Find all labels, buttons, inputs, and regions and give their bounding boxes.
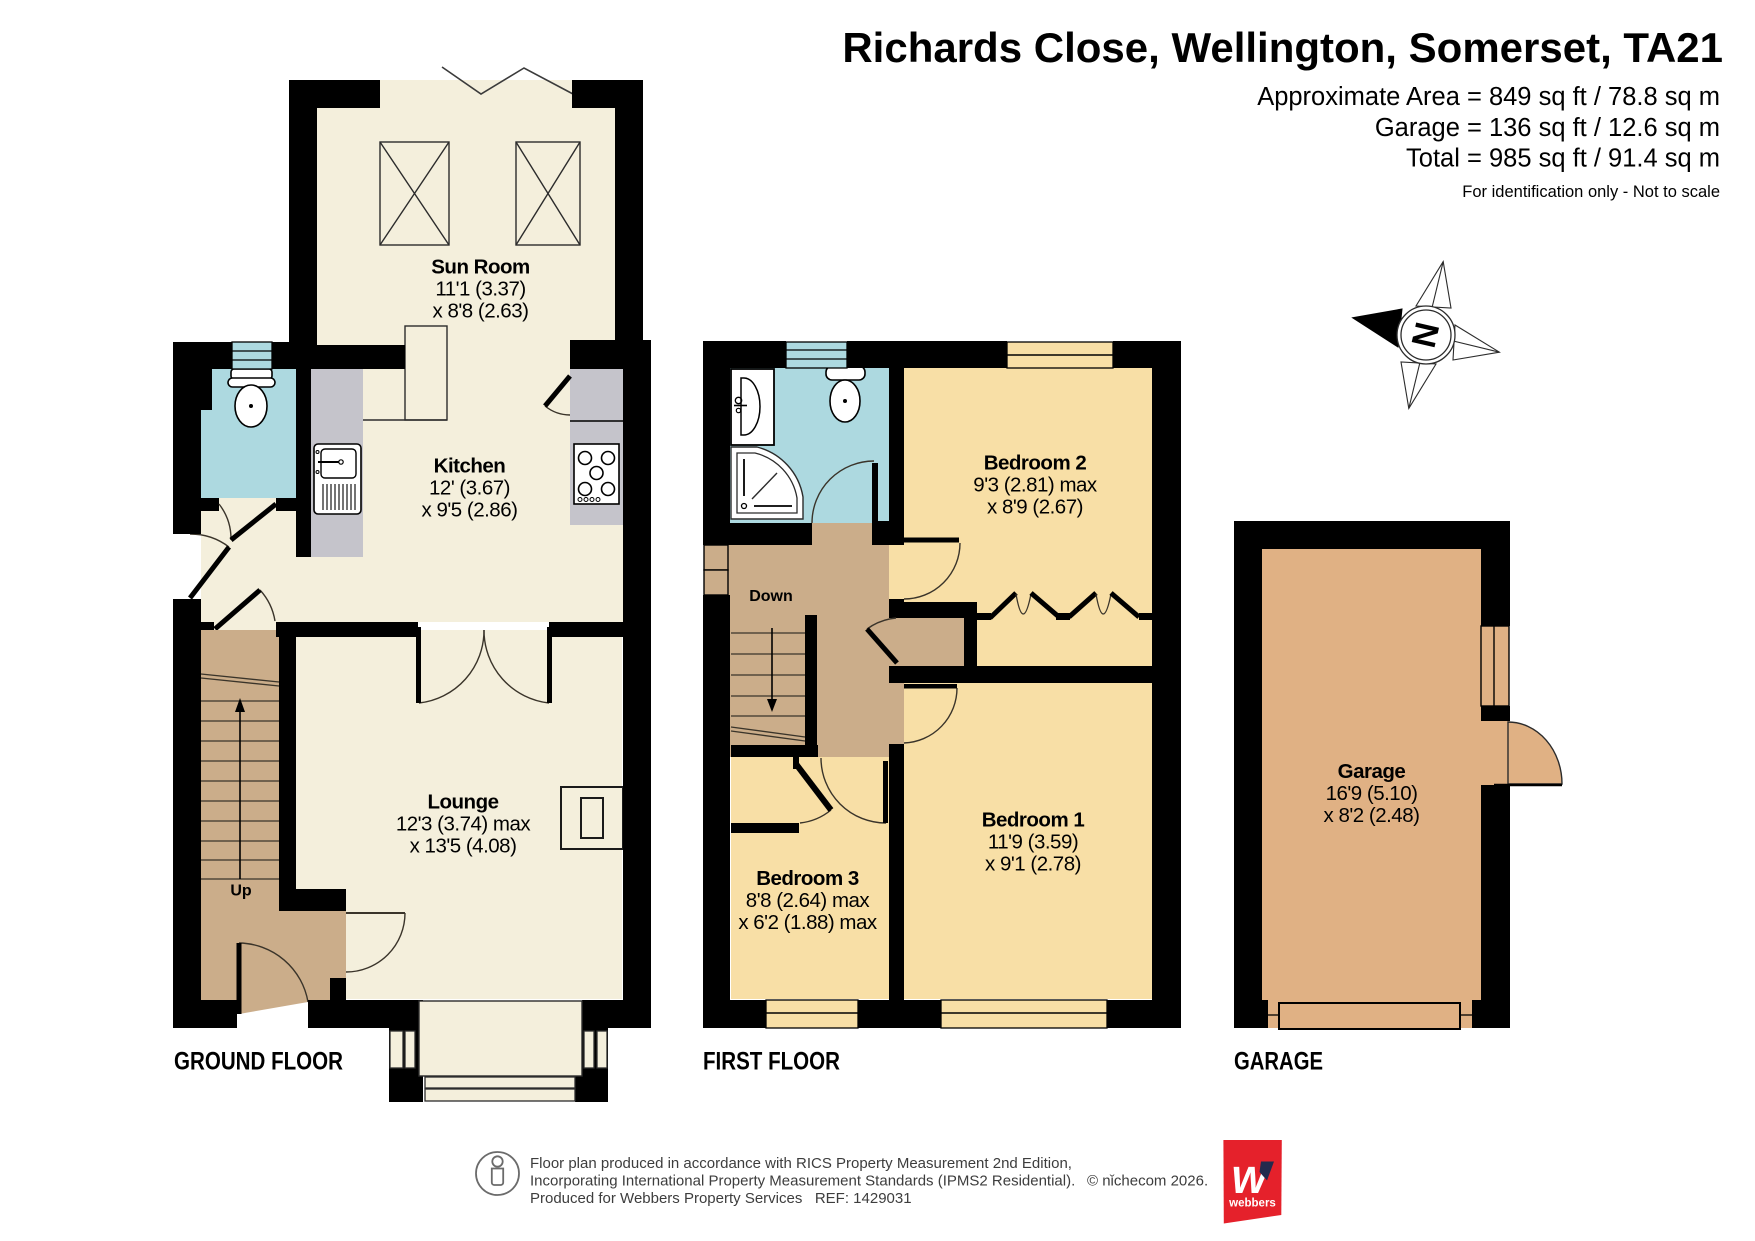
svg-text:x 8'2 (2.48): x 8'2 (2.48) bbox=[1324, 804, 1420, 827]
svg-text:Floor plan produced in accorda: Floor plan produced in accordance with R… bbox=[530, 1155, 1072, 1172]
svg-text:8'8 (2.64) max: 8'8 (2.64) max bbox=[746, 889, 871, 912]
svg-text:x 8'9 (2.67): x 8'9 (2.67) bbox=[987, 496, 1083, 519]
svg-text:Up: Up bbox=[230, 883, 252, 900]
svg-text:Garage = 136 sq ft / 12.6 sq m: Garage = 136 sq ft / 12.6 sq m bbox=[1375, 114, 1720, 142]
svg-text:11'1 (3.37): 11'1 (3.37) bbox=[435, 278, 525, 301]
svg-text:12' (3.67): 12' (3.67) bbox=[429, 477, 510, 500]
svg-text:Bedroom 2: Bedroom 2 bbox=[984, 452, 1087, 475]
svg-text:Bedroom 3: Bedroom 3 bbox=[756, 867, 859, 890]
svg-text:16'9 (5.10): 16'9 (5.10) bbox=[1326, 782, 1418, 805]
svg-text:x 9'5 (2.86): x 9'5 (2.86) bbox=[422, 499, 518, 522]
svg-text:Incorporating International Pr: Incorporating International Property Mea… bbox=[530, 1173, 1075, 1190]
svg-text:© nǐchecom 2026.: © nǐchecom 2026. bbox=[1087, 1173, 1208, 1190]
svg-text:12'3 (3.74) max: 12'3 (3.74) max bbox=[396, 813, 532, 836]
svg-text:Lounge: Lounge bbox=[427, 791, 498, 814]
svg-text:x 6'2 (1.88) max: x 6'2 (1.88) max bbox=[738, 911, 878, 934]
svg-text:x 8'8 (2.63): x 8'8 (2.63) bbox=[433, 300, 529, 323]
svg-text:9'3 (2.81) max: 9'3 (2.81) max bbox=[973, 474, 1098, 497]
svg-text:For identification only - Not: For identification only - Not to scale bbox=[1462, 183, 1720, 201]
svg-text:11'9 (3.59): 11'9 (3.59) bbox=[988, 831, 1078, 854]
svg-text:Total = 985 sq ft / 91.4 sq m: Total = 985 sq ft / 91.4 sq m bbox=[1406, 145, 1720, 173]
svg-text:GROUND FLOOR: GROUND FLOOR bbox=[174, 1048, 343, 1076]
svg-text:Produced for Webbers Property: Produced for Webbers Property Services R… bbox=[530, 1190, 912, 1207]
svg-text:FIRST FLOOR: FIRST FLOOR bbox=[703, 1048, 840, 1076]
svg-text:x 9'1 (2.78): x 9'1 (2.78) bbox=[985, 853, 1081, 876]
svg-text:Bedroom 1: Bedroom 1 bbox=[982, 809, 1085, 832]
svg-text:Down: Down bbox=[749, 588, 793, 605]
svg-text:Kitchen: Kitchen bbox=[434, 455, 506, 478]
svg-text:x 13'5 (4.08): x 13'5 (4.08) bbox=[410, 835, 517, 858]
svg-text:Sun Room: Sun Room bbox=[431, 256, 530, 279]
svg-text:GARAGE: GARAGE bbox=[1234, 1048, 1323, 1076]
svg-text:Garage: Garage bbox=[1338, 760, 1406, 783]
svg-text:Richards Close, Wellington, So: Richards Close, Wellington, Somerset, TA… bbox=[842, 24, 1723, 71]
svg-text:Approximate Area = 849 sq ft /: Approximate Area = 849 sq ft / 78.8 sq m bbox=[1257, 83, 1720, 111]
svg-text:webbers: webbers bbox=[1228, 1198, 1276, 1210]
